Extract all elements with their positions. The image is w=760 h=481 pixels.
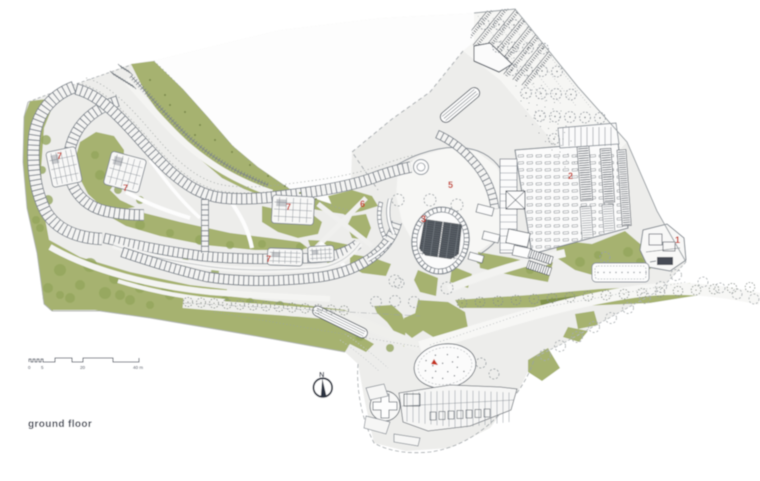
svg-text:20: 20 <box>80 365 86 370</box>
svg-text:40 m: 40 m <box>133 365 143 370</box>
svg-text:7: 7 <box>286 202 291 212</box>
svg-text:7: 7 <box>57 151 62 161</box>
svg-text:2: 2 <box>568 171 573 181</box>
svg-text:5: 5 <box>448 180 453 190</box>
svg-text:7: 7 <box>123 183 128 193</box>
svg-text:6: 6 <box>360 199 365 209</box>
svg-text:3: 3 <box>421 214 426 224</box>
svg-text:7: 7 <box>266 254 271 264</box>
svg-text:ground floor: ground floor <box>28 419 92 430</box>
svg-text:1: 1 <box>675 235 680 245</box>
